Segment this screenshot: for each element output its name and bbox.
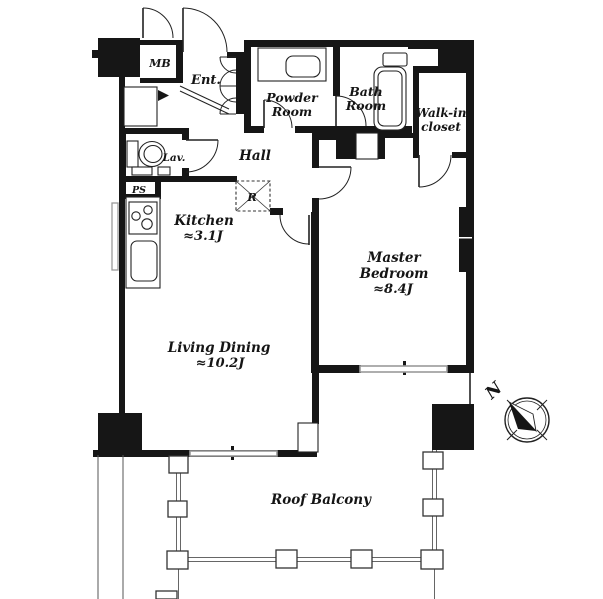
label-kitchen-size: ≈3.1J xyxy=(183,229,224,244)
pillar-bottom-right xyxy=(432,404,474,450)
door-arc-entrance xyxy=(183,8,227,52)
wall-segment xyxy=(385,133,413,138)
wall-segment xyxy=(378,133,385,159)
window-living-south xyxy=(190,451,277,456)
railing-post xyxy=(351,550,372,568)
wall-segment xyxy=(312,198,319,214)
windows xyxy=(112,203,447,456)
label-master-1: Master xyxy=(366,250,421,266)
label-living: Living Dining xyxy=(167,340,271,356)
entry-step xyxy=(180,86,229,114)
stove-burner xyxy=(144,206,152,214)
compass: N xyxy=(481,377,549,442)
vanity-sink xyxy=(286,56,320,77)
wall-segment xyxy=(119,128,189,134)
window-bedroom-south xyxy=(360,366,447,372)
label-master-size: ≈8.4J xyxy=(373,282,414,297)
pillar-bottom-left xyxy=(98,413,142,454)
wall-segment xyxy=(119,176,189,182)
wall-segment xyxy=(312,366,319,424)
compass-north-label: N xyxy=(481,377,508,404)
label-entrance: Ent. xyxy=(190,73,221,88)
wall-segment xyxy=(312,130,319,168)
kitchen-sink xyxy=(131,241,157,281)
floor-plan-drawing: N MB Ent. Powder Room Bath Room Walk-in … xyxy=(0,0,603,599)
entrance-storage xyxy=(124,87,157,126)
railing-post xyxy=(167,551,188,569)
railing-post xyxy=(156,591,177,599)
door-arc-closet xyxy=(419,155,451,187)
pillar-top-left xyxy=(98,38,140,77)
wall-segment xyxy=(452,152,472,158)
railing-post xyxy=(421,550,443,569)
wall-segment xyxy=(140,78,180,83)
lavatory-shelf xyxy=(132,167,152,175)
stove-burner xyxy=(132,212,140,220)
label-closet-1: Walk-in xyxy=(416,106,467,120)
door-arc-living xyxy=(280,215,309,244)
label-powder-2: Room xyxy=(271,104,312,119)
balcony-railing xyxy=(98,450,443,599)
wall-segment xyxy=(182,168,189,178)
wall-segment xyxy=(333,40,340,96)
label-kitchen: Kitchen xyxy=(173,213,234,229)
lavatory-shelf xyxy=(158,167,170,175)
railing-post xyxy=(276,550,297,568)
wall-segment xyxy=(155,176,161,199)
railing-post xyxy=(169,456,188,473)
bath-ledge xyxy=(383,53,407,66)
wall-segment xyxy=(311,212,319,366)
wall-segment xyxy=(182,128,189,140)
wall-segment xyxy=(248,40,340,47)
wall-left-exterior xyxy=(119,199,125,414)
label-living-size: ≈10.2J xyxy=(196,356,246,371)
corner-step xyxy=(298,423,318,452)
label-lavatory: Lav. xyxy=(162,152,186,164)
wall-segment xyxy=(176,40,183,83)
door-arc-bedroom xyxy=(319,167,351,199)
wall-segment xyxy=(189,176,237,182)
wall-segment xyxy=(333,40,412,47)
utility-niche xyxy=(356,133,378,159)
door-arc-mb xyxy=(143,8,173,38)
wall-segment xyxy=(244,40,251,133)
label-mb: MB xyxy=(148,57,170,70)
window-pillar-bar xyxy=(459,207,472,272)
wall-segment xyxy=(119,128,126,198)
label-master-2: Bedroom xyxy=(359,266,429,282)
label-bath-1: Bath xyxy=(348,84,383,99)
railing-post xyxy=(168,501,187,517)
door-arc-lavatory xyxy=(186,140,218,172)
wall-segment xyxy=(413,66,472,73)
entry-step-line xyxy=(180,91,229,114)
stove-burner xyxy=(142,219,152,229)
wall-segment xyxy=(244,126,264,133)
railing-lines xyxy=(177,450,437,599)
label-closet-2: closet xyxy=(421,120,461,134)
toilet-tank xyxy=(127,141,138,167)
floor-plan: N MB Ent. Powder Room Bath Room Walk-in … xyxy=(0,0,603,599)
wall-segment xyxy=(413,152,419,158)
label-hall: Hall xyxy=(238,148,271,164)
entry-step-line xyxy=(180,86,229,109)
toilet-bowl-inner xyxy=(144,146,162,163)
label-refrigerator: R xyxy=(246,190,257,204)
wall-segment xyxy=(270,208,283,215)
railing-posts xyxy=(156,452,443,599)
wall-segment xyxy=(92,50,99,58)
label-balcony: Roof Balcony xyxy=(270,492,372,508)
wall-segment xyxy=(311,365,361,373)
wall-segment xyxy=(447,365,474,373)
label-pipe-space: PS xyxy=(131,185,146,196)
label-bath-2: Room xyxy=(345,98,386,113)
window-kitchen-west xyxy=(112,203,118,270)
door-swing-marker xyxy=(158,90,169,101)
railing-post xyxy=(423,499,443,516)
label-powder-1: Powder xyxy=(265,90,319,105)
window-bar-gap xyxy=(459,237,472,239)
railing-post xyxy=(423,452,443,469)
